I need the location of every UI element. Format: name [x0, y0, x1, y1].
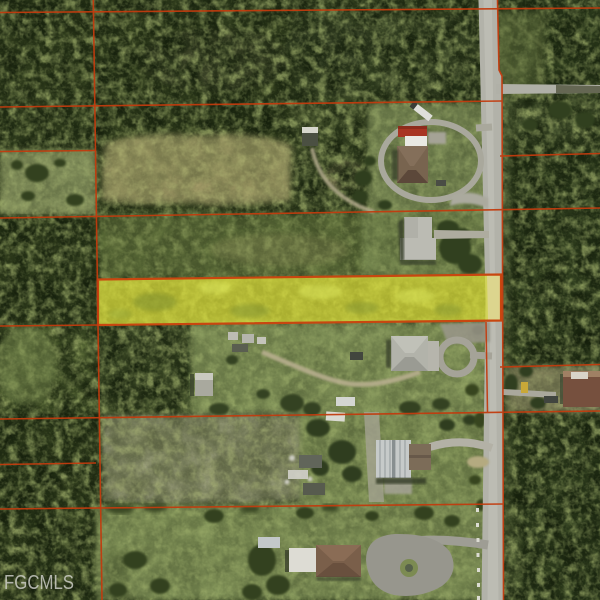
- svg-text:FGCMLS: FGCMLS: [4, 571, 74, 594]
